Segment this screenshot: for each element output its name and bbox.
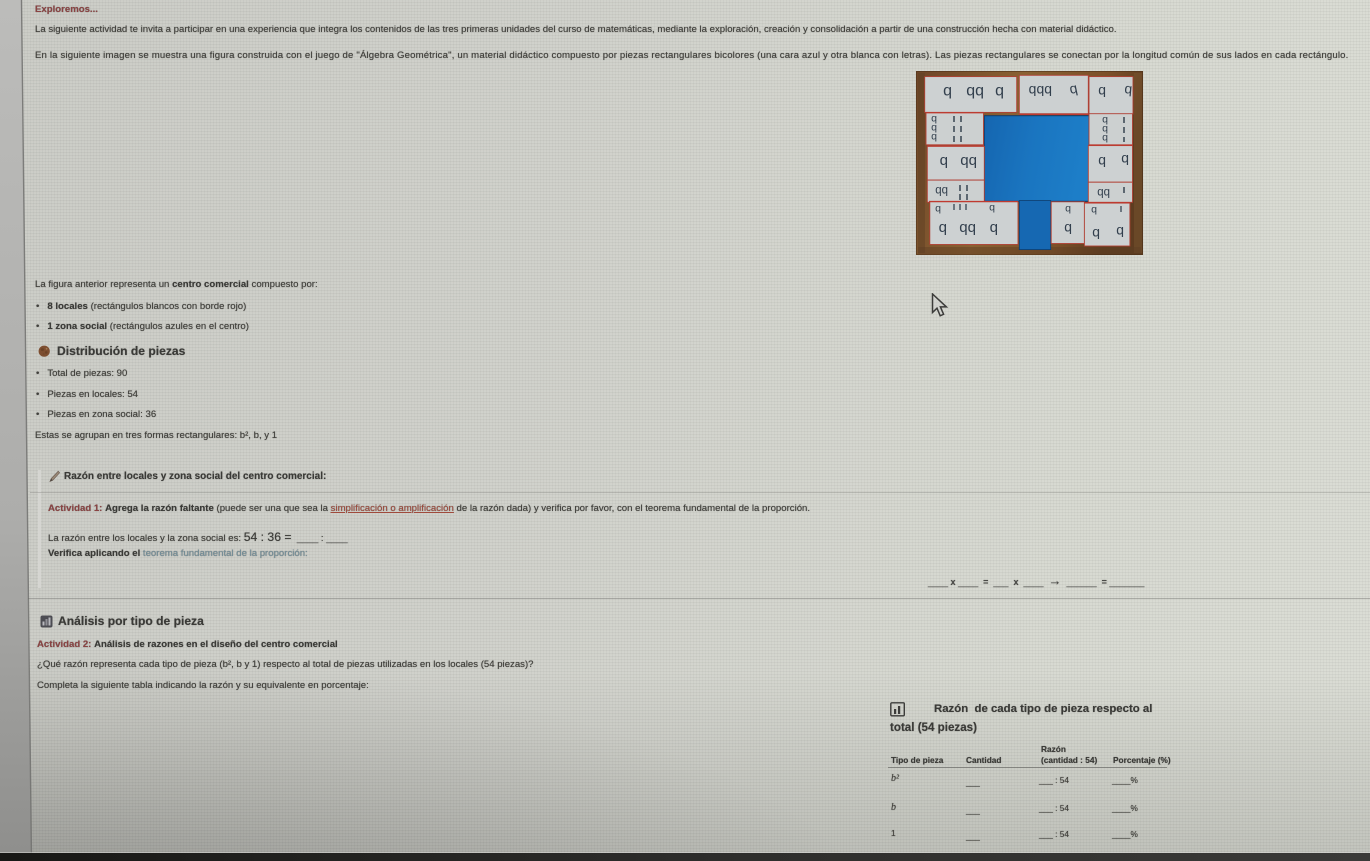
svg-text:b: b (989, 202, 995, 214)
svg-text:b: b (990, 220, 998, 237)
svg-text:b: b (1064, 221, 1072, 237)
svg-text:b: b (940, 153, 948, 170)
svg-text:b: b (1098, 154, 1106, 170)
svg-text:b: b (931, 131, 937, 143)
svg-text:b: b (1102, 132, 1108, 144)
svg-text:bb: bb (935, 184, 948, 196)
svg-text:b: b (1065, 203, 1071, 215)
svg-text:bb: bb (966, 83, 984, 100)
svg-text:b: b (1092, 226, 1100, 242)
svg-text:bbb: bbb (1028, 83, 1052, 99)
svg-text:b: b (1123, 83, 1132, 100)
svg-text:b: b (1098, 84, 1106, 100)
svg-text:bb: bb (960, 153, 977, 170)
svg-text:bb: bb (1097, 186, 1110, 198)
svg-text:b: b (1116, 224, 1124, 240)
svg-text:b: b (1121, 152, 1129, 168)
svg-text:b: b (943, 83, 952, 100)
svg-text:b: b (995, 83, 1004, 100)
svg-text:b: b (935, 203, 941, 215)
svg-text:b: b (1091, 204, 1097, 216)
svg-text:b: b (939, 220, 947, 237)
svg-text:bb: bb (959, 220, 976, 237)
